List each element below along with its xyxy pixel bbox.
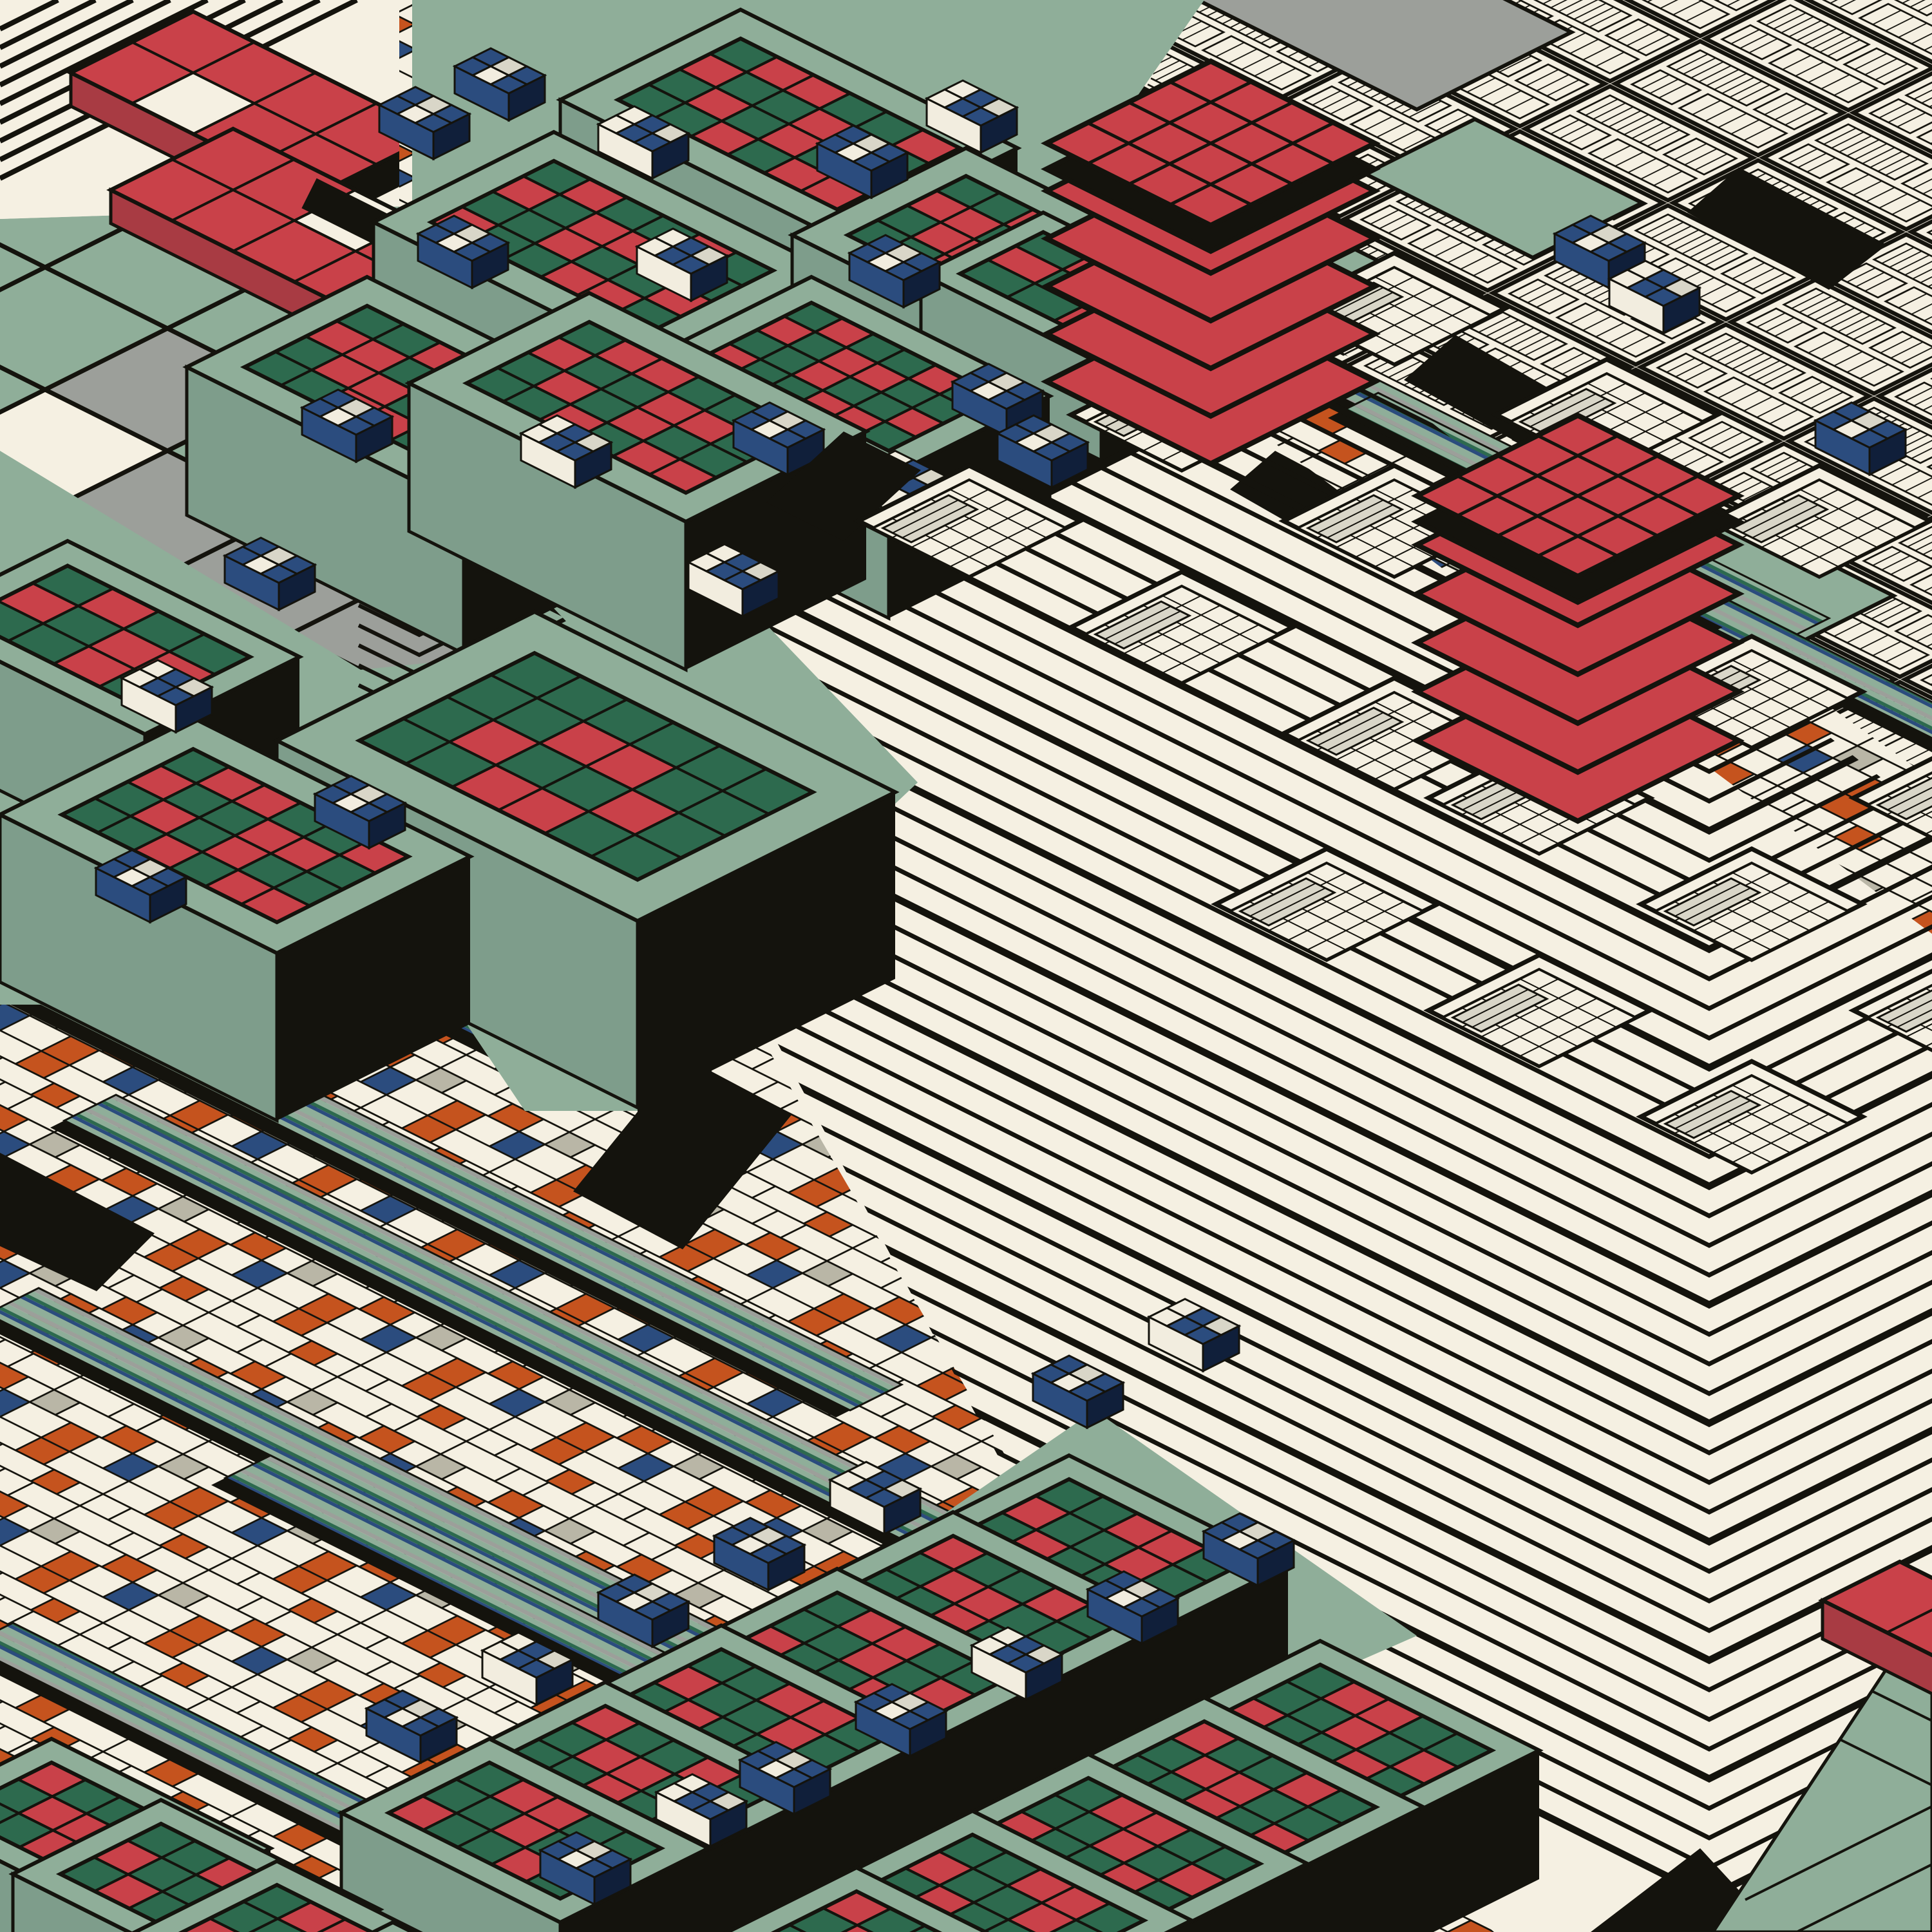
generative-artwork-canvas bbox=[0, 0, 1932, 1932]
artwork-root bbox=[0, 0, 1932, 1932]
red-pagoda bbox=[1417, 415, 1739, 821]
artwork-stage bbox=[0, 0, 1932, 1932]
red-pagoda bbox=[1046, 61, 1375, 464]
black-shadow-shape bbox=[638, 947, 712, 1137]
